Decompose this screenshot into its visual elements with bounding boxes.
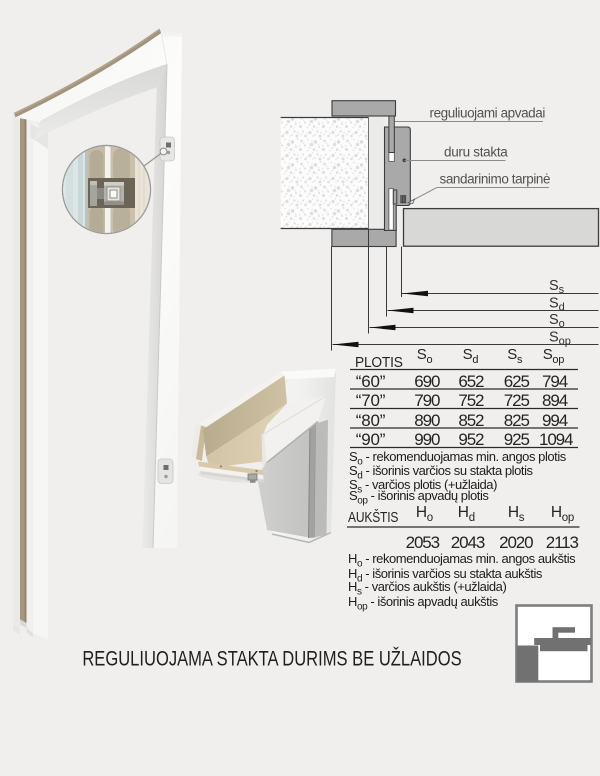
svg-text:Sop: Sop [549, 330, 571, 348]
svg-text:duru stakta: duru stakta [444, 145, 508, 160]
svg-text:sandarinimo tarpinė: sandarinimo tarpinė [440, 172, 551, 187]
svg-text:Sd: Sd [549, 296, 565, 314]
svg-text:Ss: Ss [549, 278, 565, 296]
svg-text:So: So [549, 312, 565, 330]
svg-text:reguliuojami apvadai: reguliuojami apvadai [430, 106, 546, 121]
